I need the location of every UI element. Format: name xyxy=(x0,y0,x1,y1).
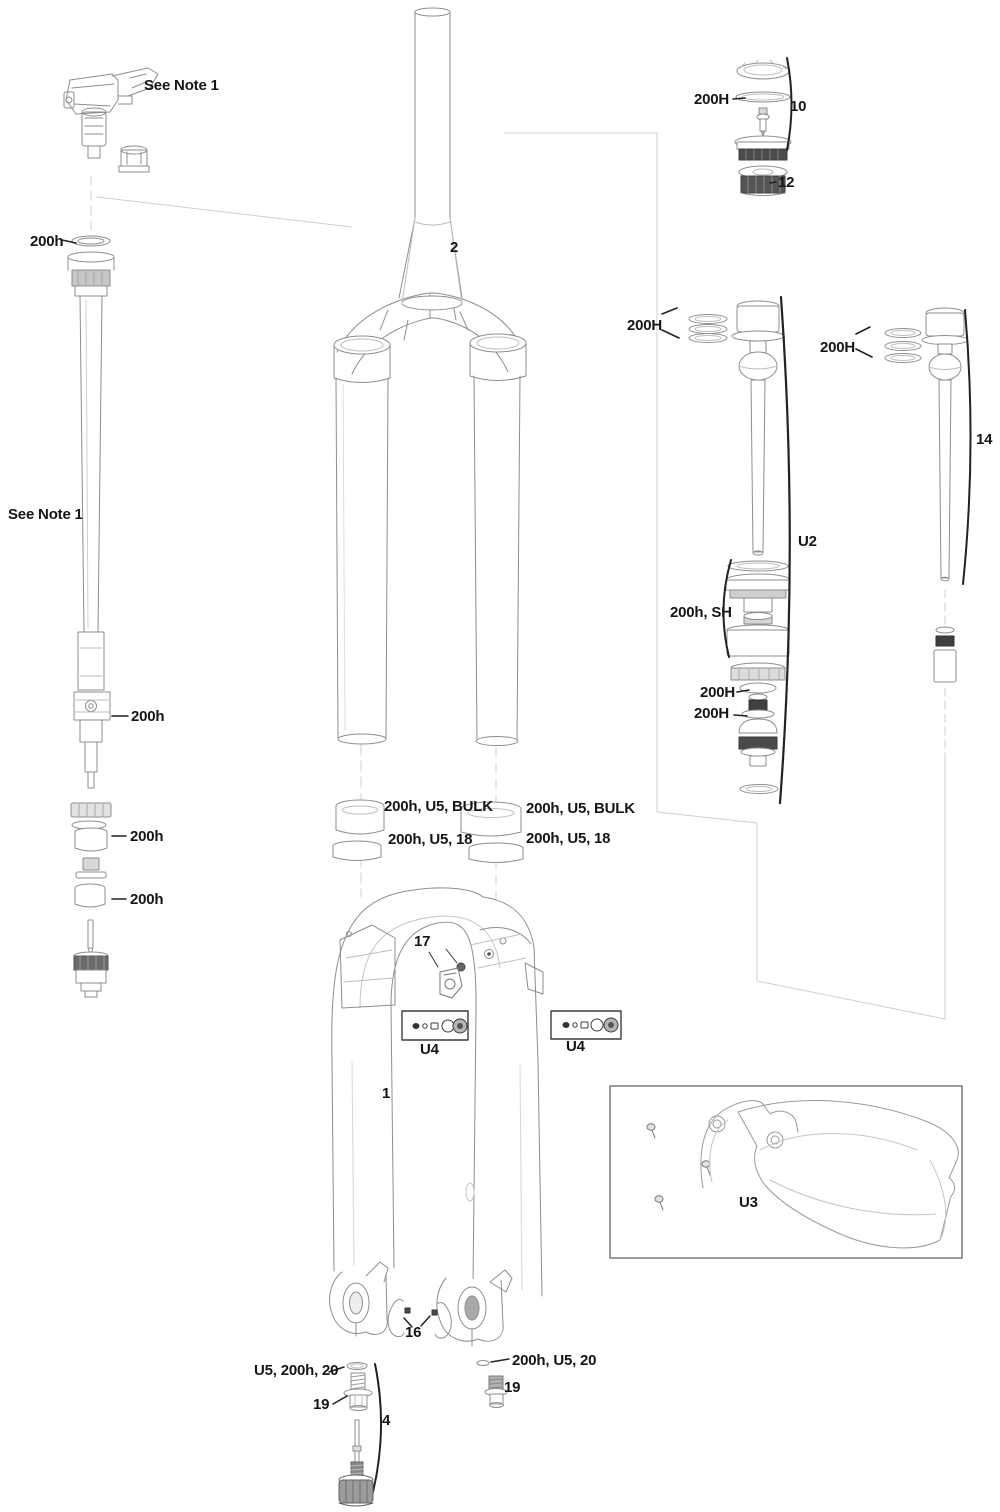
seal-bulk-left-label: 200h, U5, BULK xyxy=(384,798,493,815)
h200-mid1-label: 200h xyxy=(130,828,163,845)
u3-fender-box xyxy=(610,1086,962,1258)
part-17-label: 17 xyxy=(414,933,430,950)
part-19-left-label: 19 xyxy=(313,1396,329,1413)
note-left-label: See Note 1 xyxy=(8,506,83,523)
csu-drawing xyxy=(334,8,526,746)
exploded-diagram: See Note 1 200h 2 200H 10 12 200H 200H 1… xyxy=(0,0,1000,1512)
u4-kit-left xyxy=(402,1011,468,1040)
cable-guide-drawing xyxy=(429,949,465,998)
part-10-label: 10 xyxy=(790,98,806,115)
u4-left-label: U4 xyxy=(420,1041,439,1058)
air-shaft-drawing xyxy=(856,308,971,682)
u4-right-label: U4 xyxy=(566,1038,585,1055)
part-16-label: 16 xyxy=(405,1324,421,1341)
u5-200h-20-left-label: U5, 200h, 20 xyxy=(254,1362,338,1379)
seal-bulk-right-label: 200h, U5, BULK xyxy=(526,800,635,817)
sh-200h-label: 200h, SH xyxy=(670,604,732,621)
u3-label: U3 xyxy=(739,1194,758,1211)
h200-b-label: 200H xyxy=(694,705,729,722)
part-19-right-label: 19 xyxy=(504,1379,520,1396)
h200-a-label: 200H xyxy=(700,684,735,701)
h200-u2-label: 200H xyxy=(627,317,662,334)
damper-assembly-drawing xyxy=(68,236,114,997)
u2-seal-rings xyxy=(662,308,727,343)
h200-left-top-label: 200h xyxy=(30,233,63,250)
seal-18-left-label: 200h, U5, 18 xyxy=(388,831,472,848)
part-4-label: 4 xyxy=(382,1412,390,1429)
part-u2-label: U2 xyxy=(798,533,817,550)
seal-18-right-label: 200h, U5, 18 xyxy=(526,830,610,847)
part-14-label: 14 xyxy=(976,431,992,448)
lower-legs-drawing xyxy=(330,888,543,1346)
h200-mid2-label: 200h xyxy=(130,891,163,908)
fender-drawing xyxy=(701,1101,958,1248)
h200-cap-label: 200H xyxy=(694,91,729,108)
h200-lockout-label: 200h xyxy=(131,708,164,725)
h200-u5-20-right-label: 200h, U5, 20 xyxy=(512,1352,596,1369)
u2-damper-drawing xyxy=(662,297,790,803)
label-leaders xyxy=(62,240,128,899)
h200-14-label: 200H xyxy=(820,339,855,356)
u4-kit-right xyxy=(551,1011,621,1039)
part-12-label: 12 xyxy=(778,174,794,191)
fork-line-art xyxy=(0,0,1000,1512)
part-2-label: 2 xyxy=(450,239,458,256)
note-top-label: See Note 1 xyxy=(144,77,219,94)
part-1-label: 1 xyxy=(382,1085,390,1102)
